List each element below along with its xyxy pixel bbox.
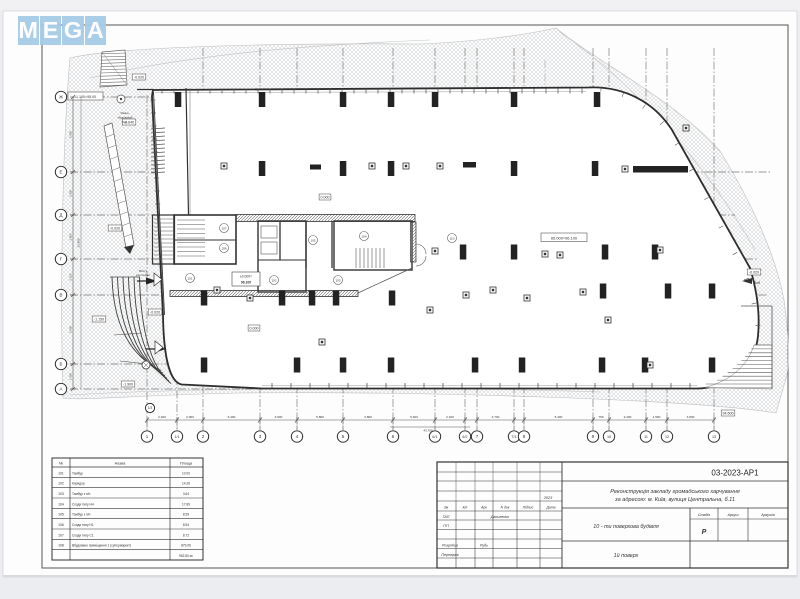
svg-text:12: 12 xyxy=(665,435,669,439)
svg-text:1.900: 1.900 xyxy=(69,373,73,380)
svg-text:107: 107 xyxy=(58,533,64,537)
svg-text:Даниленко: Даниленко xyxy=(490,515,509,519)
svg-text:96.100: 96.100 xyxy=(241,281,251,285)
svg-text:1й поверх: 1й поверх xyxy=(614,552,639,559)
svg-text:Тамбур з п/п: Тамбур з п/п xyxy=(72,492,91,496)
svg-text:879.06: 879.06 xyxy=(181,544,191,548)
svg-text:Арк: Арк xyxy=(480,506,487,510)
svg-text:Е: Е xyxy=(60,170,63,175)
svg-text:±0.000=: ±0.000= xyxy=(240,275,252,279)
svg-text:32.800: 32.800 xyxy=(77,238,81,248)
svg-text:Д: Д xyxy=(60,213,63,218)
svg-text:6/1: 6/1 xyxy=(432,435,437,439)
svg-text:Дата: Дата xyxy=(546,506,556,510)
svg-text:-1.150: -1.150 xyxy=(94,317,104,321)
svg-text:106: 106 xyxy=(58,523,64,527)
svg-text:110: 110 xyxy=(450,237,455,241)
svg-text:2.100: 2.100 xyxy=(446,415,454,419)
svg-text:Аркушів: Аркушів xyxy=(760,513,775,517)
svg-text:3.800: 3.800 xyxy=(364,415,372,419)
svg-text:14.26: 14.26 xyxy=(182,482,190,486)
svg-text:за адресою: м. Київ, вулиця Це: за адресою: м. Київ, вулиця Центральна, … xyxy=(614,497,735,503)
svg-text:Тамбур: Тамбур xyxy=(72,471,83,475)
svg-text:94.600: 94.600 xyxy=(723,411,734,415)
svg-text:5.000: 5.000 xyxy=(69,326,73,333)
svg-text:Сходи типу Н1: Сходи типу Н1 xyxy=(72,523,94,527)
svg-text:5.400: 5.400 xyxy=(410,415,418,419)
svg-text:Вбудоване приміщення 1 (суперм: Вбудоване приміщення 1 (супермаркет) xyxy=(72,544,131,548)
svg-text:3.900: 3.900 xyxy=(275,415,283,419)
svg-text:2.000: 2.000 xyxy=(186,415,194,419)
svg-text:5.900: 5.900 xyxy=(69,131,73,138)
svg-text:0.000: 0.000 xyxy=(250,326,259,330)
svg-text:Тамбур з п/п: Тамбур з п/п xyxy=(72,513,91,517)
svg-text:Вхід: Вхід xyxy=(754,281,760,285)
svg-text:-0.020: -0.020 xyxy=(134,75,144,79)
svg-text:104: 104 xyxy=(361,235,366,239)
svg-text:7/1: 7/1 xyxy=(511,435,516,439)
svg-text:ГІП: ГІП xyxy=(443,524,449,528)
svg-text:А: А xyxy=(60,387,63,392)
svg-text:6/2: 6/2 xyxy=(462,435,467,439)
svg-text:2023: 2023 xyxy=(543,496,553,500)
svg-text:6.400: 6.400 xyxy=(228,415,236,419)
svg-text:-0.020: -0.020 xyxy=(110,226,120,230)
svg-text:8.59: 8.59 xyxy=(183,513,189,517)
svg-text:-0.020: -0.020 xyxy=(150,310,160,314)
svg-text:102: 102 xyxy=(58,482,64,486)
svg-text:Реконструкція закладу громадсь: Реконструкція закладу громадського харчу… xyxy=(610,489,740,495)
svg-text:Раніш-: Раніш- xyxy=(121,111,130,115)
svg-text:Коридор: Коридор xyxy=(72,482,85,486)
svg-text:5.400: 5.400 xyxy=(555,415,563,419)
svg-text:101: 101 xyxy=(187,277,192,281)
svg-text:Рудь: Рудь xyxy=(480,544,488,548)
svg-text:104: 104 xyxy=(58,502,64,506)
svg-text:В: В xyxy=(60,293,63,298)
svg-text:10: 10 xyxy=(607,435,611,439)
svg-text:Перевірив: Перевірив xyxy=(441,553,458,557)
svg-text:103: 103 xyxy=(58,492,64,496)
svg-text:2.800: 2.800 xyxy=(69,233,73,240)
svg-text:Сходи типу С1: Сходи типу С1 xyxy=(72,533,94,537)
svg-text:10 - ти поверхова будівля: 10 - ти поверхова будівля xyxy=(593,524,659,530)
svg-text:106: 106 xyxy=(221,247,226,251)
svg-text:10.00: 10.00 xyxy=(182,471,190,475)
svg-text:Б: Б xyxy=(60,362,63,367)
svg-text:102: 102 xyxy=(271,279,276,283)
svg-text:0.000: 0.000 xyxy=(321,195,330,199)
svg-text:952.80 м²: 952.80 м² xyxy=(179,554,193,558)
svg-text:-0.020: -0.020 xyxy=(749,270,759,274)
svg-text:Розробив: Розробив xyxy=(442,544,458,548)
svg-text:№: № xyxy=(59,462,63,466)
svg-text:3.64: 3.64 xyxy=(183,492,189,496)
svg-text:Назва: Назва xyxy=(115,462,127,466)
svg-text:-1.100=95.00: -1.100=95.00 xyxy=(75,95,96,99)
svg-text:2.200: 2.200 xyxy=(624,415,632,419)
svg-text:5.800: 5.800 xyxy=(316,415,324,419)
svg-text:3.730: 3.730 xyxy=(492,415,500,419)
svg-text:105: 105 xyxy=(58,513,64,517)
svg-text:1/3: 1/3 xyxy=(148,406,153,410)
svg-text:5.100: 5.100 xyxy=(69,273,73,280)
svg-text:Стадія: Стадія xyxy=(698,513,710,517)
svg-text:103: 103 xyxy=(335,279,340,283)
svg-text:101: 101 xyxy=(58,471,64,475)
svg-text:Аркуш: Аркуш xyxy=(727,513,739,517)
svg-text:Зм: Зм xyxy=(444,506,449,510)
svg-text:ГАП: ГАП xyxy=(443,515,450,519)
svg-text:Підпис: Підпис xyxy=(523,506,534,510)
svg-text:13: 13 xyxy=(712,435,716,439)
svg-text:буд.: буд. xyxy=(122,120,127,124)
svg-text:Сходи типу Н4: Сходи типу Н4 xyxy=(72,502,94,506)
svg-text:3.300: 3.300 xyxy=(69,190,73,197)
svg-text:65.000=96.100: 65.000=96.100 xyxy=(551,236,578,241)
svg-text:17.89: 17.89 xyxy=(182,502,190,506)
svg-text:-1.900: -1.900 xyxy=(123,382,133,386)
svg-text:1/1: 1/1 xyxy=(174,435,179,439)
svg-text:Р: Р xyxy=(702,529,707,536)
svg-text:750: 750 xyxy=(598,415,603,419)
svg-text:8.54: 8.54 xyxy=(183,523,189,527)
svg-text:105: 105 xyxy=(310,239,315,243)
svg-text:11: 11 xyxy=(644,435,648,439)
svg-text:108: 108 xyxy=(58,544,64,548)
svg-text:107: 107 xyxy=(221,227,226,231)
svg-text:Ж: Ж xyxy=(59,95,63,100)
svg-text:8.72: 8.72 xyxy=(183,533,189,537)
svg-text:1.500: 1.500 xyxy=(653,415,661,419)
svg-text:03-2023-АР1: 03-2023-АР1 xyxy=(711,469,759,478)
svg-text:2.400: 2.400 xyxy=(158,415,166,419)
svg-text:3.830: 3.830 xyxy=(687,415,695,419)
svg-text:Площа: Площа xyxy=(180,462,193,466)
svg-text:N док: N док xyxy=(501,506,510,510)
svg-text:збудований: збудований xyxy=(118,116,133,120)
svg-text:ресторан: ресторан xyxy=(135,273,150,277)
svg-text:Кіл: Кіл xyxy=(463,506,468,510)
